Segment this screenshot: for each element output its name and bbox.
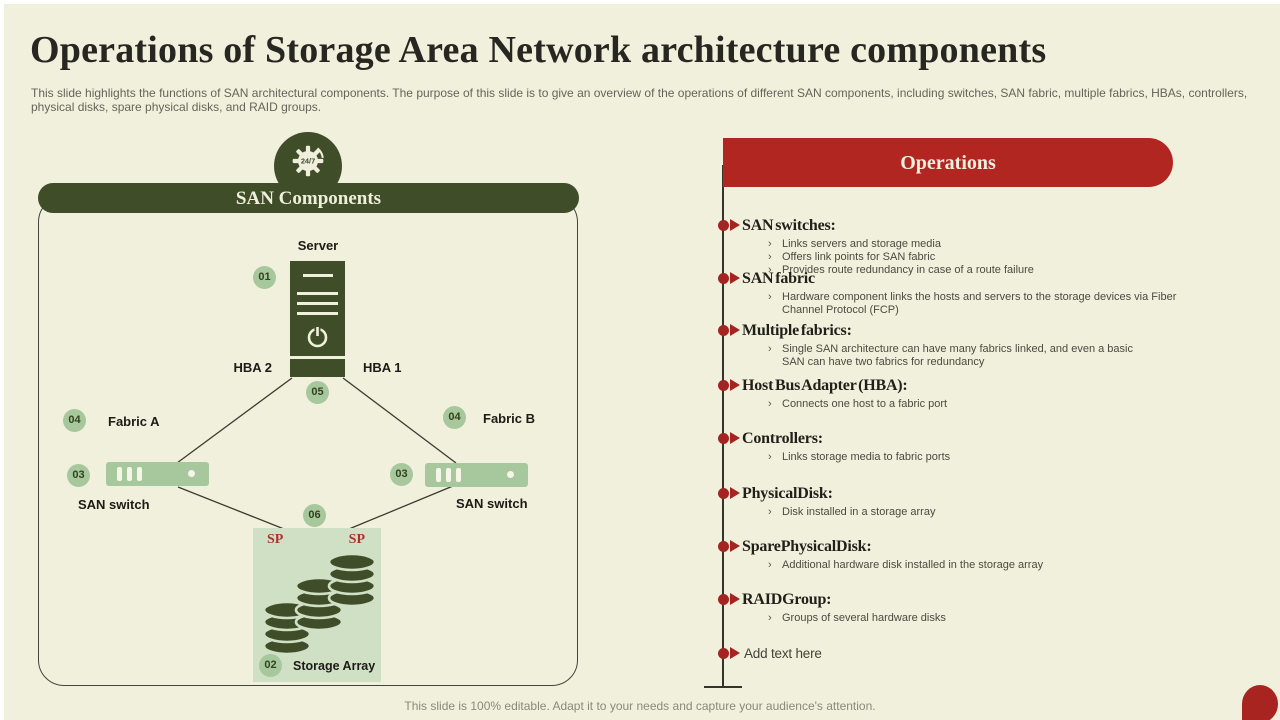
- bullet-arrow-icon: [730, 379, 740, 391]
- slide-margin-top: [0, 0, 1280, 4]
- bullet-arrow-icon: [730, 647, 740, 659]
- fabric-a-label: Fabric A: [108, 414, 160, 429]
- sub-bullet-icon: ›: [768, 451, 782, 464]
- item-point: Links storage media to fabric ports: [782, 451, 950, 464]
- sub-bullet-icon: ›: [768, 612, 782, 625]
- item-title: RAIDGroup:: [742, 591, 1193, 609]
- item-title: Controllers:: [742, 430, 1193, 448]
- sub-bullet-icon: ›: [768, 291, 782, 317]
- sub-bullet-icon: ›: [768, 343, 782, 369]
- bullet-arrow-icon: [730, 487, 740, 499]
- operations-item-spare-physical-disk: SparePhysicalDisk: ›Additional hardware …: [723, 538, 1193, 572]
- item-point: Groups of several hardware disks: [782, 612, 946, 625]
- item-point: Links servers and storage media: [782, 238, 941, 251]
- operations-timeline-end: [704, 686, 742, 688]
- bullet-dot-icon: [718, 541, 729, 552]
- item-title: SparePhysicalDisk:: [742, 538, 1193, 556]
- sub-bullet-icon: ›: [768, 506, 782, 519]
- server-icon: [290, 261, 345, 356]
- bullet-arrow-icon: [730, 593, 740, 605]
- badge-05: 05: [306, 381, 329, 404]
- badge-03-left: 03: [67, 464, 90, 487]
- item-title: Host Bus Adapter (HBA):: [742, 377, 1193, 395]
- fabric-b-label: Fabric B: [483, 411, 535, 426]
- badge-04-left: 04: [63, 409, 86, 432]
- bullet-dot-icon: [718, 648, 729, 659]
- bullet-arrow-icon: [730, 540, 740, 552]
- bullet-arrow-icon: [730, 219, 740, 231]
- disk-stack-icon: [253, 546, 381, 664]
- add-text-placeholder[interactable]: Add text here: [744, 645, 1193, 661]
- operations-item-controllers: Controllers: ›Links storage media to fab…: [723, 430, 1193, 464]
- item-title: SAN switches:: [742, 217, 1193, 235]
- bullet-dot-icon: [718, 380, 729, 391]
- operations-item-physical-disk: PhysicalDisk: ›Disk installed in a stora…: [723, 485, 1193, 519]
- item-title: PhysicalDisk:: [742, 485, 1193, 503]
- sub-bullet-icon: ›: [768, 238, 782, 251]
- item-point: Additional hardware disk installed in th…: [782, 559, 1043, 572]
- sub-bullet-icon: ›: [768, 251, 782, 264]
- slide-margin-left: [0, 0, 4, 720]
- item-point: Hardware component links the hosts and s…: [782, 291, 1193, 317]
- operations-item-san-switches: SAN switches: ›Links servers and storage…: [723, 217, 1193, 278]
- bullet-arrow-icon: [730, 324, 740, 336]
- operations-item-multiple-fabrics: Multiple fabrics: ›Single SAN architectu…: [723, 322, 1193, 369]
- san-switch-left-label: SAN switch: [78, 497, 150, 512]
- server-label: Server: [290, 238, 346, 253]
- power-icon: [304, 323, 331, 350]
- operations-item-placeholder[interactable]: Add text here: [723, 645, 1193, 661]
- item-point: Connects one host to a fabric port: [782, 398, 947, 411]
- page-title: Operations of Storage Area Network archi…: [30, 28, 1240, 72]
- slide: Operations of Storage Area Network archi…: [0, 0, 1280, 720]
- storage-array-label: Storage Array: [293, 659, 375, 673]
- gear-icon-text: 24/7: [301, 157, 315, 166]
- bullet-dot-icon: [718, 220, 729, 231]
- sub-bullet-icon: ›: [768, 398, 782, 411]
- bullet-dot-icon: [718, 325, 729, 336]
- bullet-dot-icon: [718, 594, 729, 605]
- san-switch-right-label: SAN switch: [456, 496, 528, 511]
- page-subtitle: This slide highlights the functions of S…: [31, 87, 1257, 114]
- bullet-dot-icon: [718, 433, 729, 444]
- footer-note: This slide is 100% editable. Adapt it to…: [0, 699, 1280, 713]
- item-title: SAN fabric: [742, 270, 1193, 288]
- item-title: Multiple fabrics:: [742, 322, 1193, 340]
- hba2-label: HBA 2: [212, 360, 272, 375]
- item-point: Offers link points for SAN fabric: [782, 251, 935, 264]
- hba-block: [290, 359, 345, 377]
- operations-item-hba: Host Bus Adapter (HBA): ›Connects one ho…: [723, 377, 1193, 411]
- hba1-label: HBA 1: [363, 360, 402, 375]
- bullet-dot-icon: [718, 488, 729, 499]
- bullet-dot-icon: [718, 273, 729, 284]
- operations-item-san-fabric: SAN fabric ›Hardware component links the…: [723, 270, 1193, 317]
- bullet-arrow-icon: [730, 272, 740, 284]
- corner-decoration: [1242, 685, 1278, 720]
- san-switch-left-icon: [106, 462, 209, 486]
- san-switch-right-icon: [425, 463, 528, 487]
- badge-06: 06: [303, 504, 326, 527]
- sub-bullet-icon: ›: [768, 559, 782, 572]
- operations-item-raid-group: RAIDGroup: ›Groups of several hardware d…: [723, 591, 1193, 625]
- item-point: Disk installed in a storage array: [782, 506, 935, 519]
- badge-01: 01: [253, 266, 276, 289]
- item-point: Single SAN architecture can have many fa…: [782, 343, 1147, 369]
- diagram-title: SAN Components: [38, 183, 579, 213]
- bullet-arrow-icon: [730, 432, 740, 444]
- badge-03-right: 03: [390, 463, 413, 486]
- badge-04-right: 04: [443, 406, 466, 429]
- badge-02: 02: [259, 654, 282, 677]
- operations-header: Operations: [723, 138, 1173, 187]
